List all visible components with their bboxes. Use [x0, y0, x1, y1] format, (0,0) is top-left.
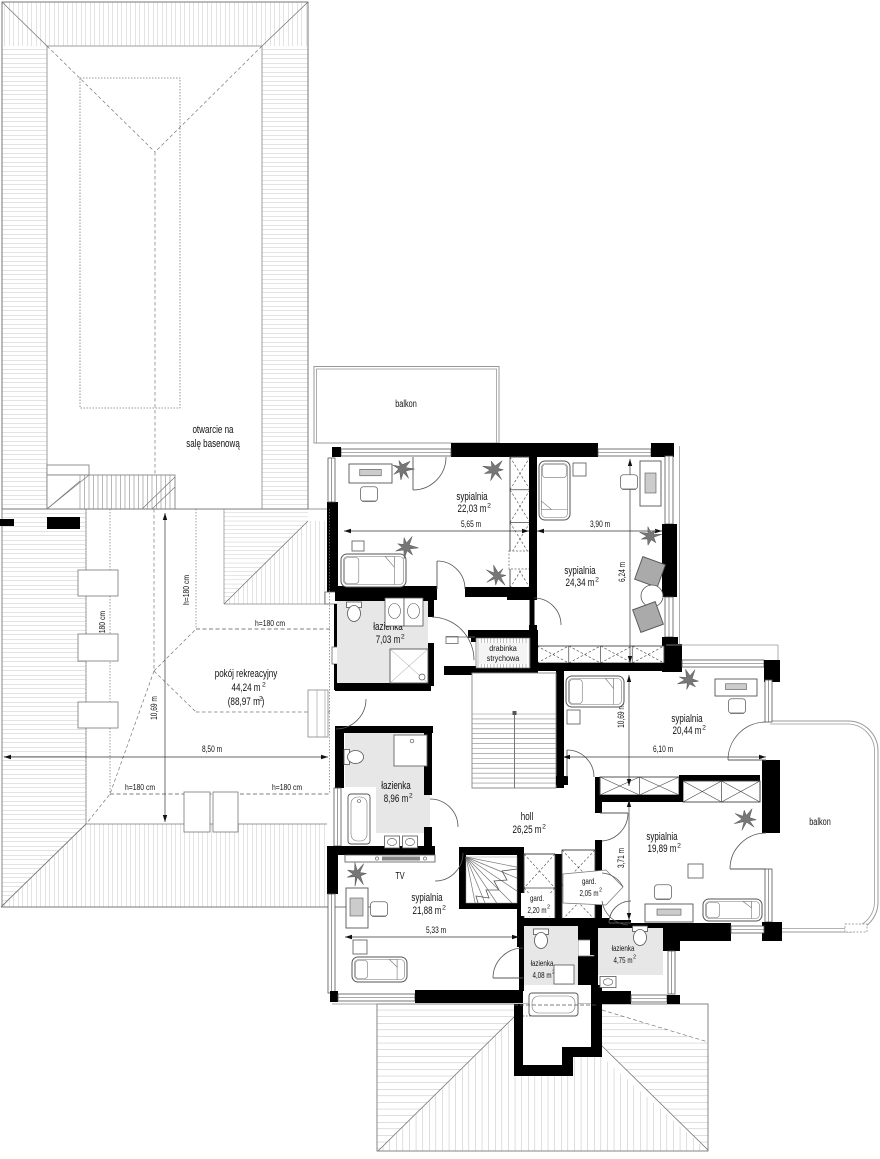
svg-text:2: 2 [401, 634, 405, 641]
svg-text:2: 2 [702, 725, 706, 732]
svg-text:2: 2 [259, 696, 263, 703]
svg-text:5,65 m: 5,65 m [461, 519, 481, 529]
svg-text:2: 2 [409, 793, 413, 800]
svg-text:2: 2 [542, 824, 546, 831]
svg-text:8,96 m: 8,96 m [384, 793, 409, 805]
svg-text:4,08 m: 4,08 m [533, 970, 552, 980]
svg-text:h=180 cm: h=180 cm [272, 783, 302, 792]
svg-text:2: 2 [262, 682, 266, 689]
svg-text:22,03 m: 22,03 m [458, 503, 487, 515]
svg-text:2,05 m: 2,05 m [580, 888, 599, 898]
svg-text:strychowa: strychowa [487, 654, 520, 663]
svg-text:TV: TV [395, 871, 405, 882]
svg-text:5,33 m: 5,33 m [426, 925, 446, 935]
svg-text:h=180 cm: h=180 cm [255, 619, 285, 628]
svg-text:20,44 m: 20,44 m [673, 725, 702, 737]
svg-text:24,34 m: 24,34 m [566, 577, 595, 589]
svg-text:łazienka: łazienka [612, 943, 635, 953]
svg-text:26,25 m: 26,25 m [513, 824, 542, 836]
svg-text:2: 2 [677, 843, 681, 850]
svg-text:2: 2 [487, 503, 491, 510]
svg-text:sypialnia: sypialnia [671, 713, 703, 725]
svg-text:gard.: gard. [582, 876, 596, 886]
svg-text:sypialnia: sypialnia [564, 565, 596, 577]
svg-text:balkon: balkon [395, 399, 417, 410]
svg-text:2: 2 [595, 577, 599, 584]
svg-text:10,69 m: 10,69 m [616, 704, 626, 728]
svg-text:otwarcie na: otwarcie na [192, 424, 234, 436]
svg-text:h=180 cm: h=180 cm [125, 783, 155, 792]
svg-text:h=180 cm: h=180 cm [182, 575, 191, 605]
svg-text:pokój rekreacyjny: pokój rekreacyjny [215, 668, 278, 680]
svg-text:2: 2 [547, 905, 550, 911]
svg-text:44,24 m: 44,24 m [232, 682, 261, 694]
svg-text:19,89 m: 19,89 m [648, 843, 677, 855]
svg-text:sypialnia: sypialnia [411, 892, 443, 904]
svg-text:holl: holl [521, 811, 534, 823]
svg-text:8,50 m: 8,50 m [202, 744, 222, 754]
svg-text:balkon: balkon [809, 817, 831, 828]
svg-text:sypialnia: sypialnia [456, 491, 488, 503]
svg-text:łazienka: łazienka [531, 958, 554, 968]
svg-text:łazienka: łazienka [381, 780, 411, 792]
svg-text:6,10 m: 6,10 m [653, 744, 673, 754]
svg-text:sypialnia: sypialnia [646, 831, 678, 843]
svg-text:21,88 m: 21,88 m [413, 905, 442, 917]
svg-text:drabinka: drabinka [489, 644, 517, 653]
svg-text:6,24 m: 6,24 m [617, 562, 627, 582]
svg-text:7,03 m: 7,03 m [376, 634, 401, 646]
svg-text:2,20 m: 2,20 m [528, 905, 547, 915]
svg-text:gard.: gard. [530, 893, 544, 903]
svg-text:3,71 m: 3,71 m [616, 848, 626, 868]
svg-text:2: 2 [442, 905, 446, 912]
svg-text:3,90 m: 3,90 m [590, 519, 610, 529]
svg-text:2: 2 [633, 955, 636, 961]
svg-text:10,69 m: 10,69 m [149, 696, 159, 720]
svg-text:2: 2 [599, 888, 602, 894]
svg-text:salę basenową: salę basenową [186, 438, 240, 450]
svg-text:4,75 m: 4,75 m [614, 955, 633, 965]
